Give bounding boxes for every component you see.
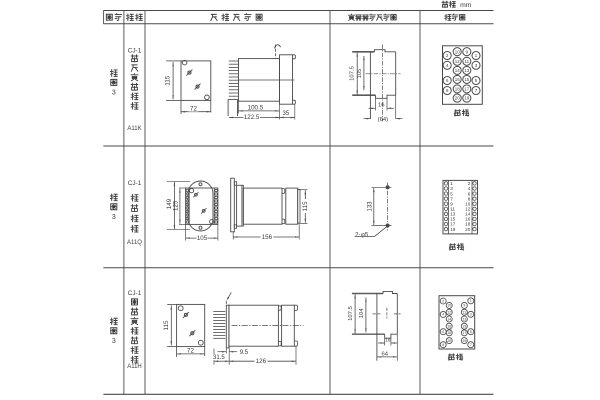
svg-text:CJ-1: CJ-1 [128, 290, 142, 297]
svg-text:4: 4 [442, 313, 444, 317]
svg-text:64: 64 [382, 351, 389, 357]
svg-text:A11H: A11H [127, 364, 142, 370]
svg-text:125: 125 [173, 200, 180, 211]
svg-text:3: 3 [112, 90, 116, 97]
svg-text:(64): (64) [378, 117, 389, 123]
svg-text:): ) [461, 355, 463, 362]
svg-text:16: 16 [385, 338, 391, 344]
svg-text:35: 35 [283, 111, 290, 117]
svg-text:20: 20 [455, 96, 460, 101]
svg-text:12: 12 [455, 59, 460, 64]
svg-text:6: 6 [442, 330, 444, 334]
svg-text:16: 16 [378, 103, 385, 109]
svg-text:14: 14 [447, 317, 451, 321]
svg-text:19: 19 [462, 339, 466, 343]
svg-text:9: 9 [463, 304, 465, 308]
svg-text:126: 126 [256, 358, 267, 365]
svg-text:20: 20 [447, 339, 451, 343]
svg-text:115: 115 [165, 75, 172, 85]
svg-text:15: 15 [462, 325, 466, 329]
svg-text:A11Q: A11Q [127, 240, 142, 246]
svg-text:): ) [462, 244, 464, 251]
svg-text:16: 16 [447, 325, 451, 329]
svg-text:18: 18 [447, 331, 451, 335]
svg-text:104: 104 [359, 308, 365, 319]
svg-text:5: 5 [470, 330, 472, 334]
svg-text:122.5: 122.5 [244, 114, 260, 121]
svg-text:9.5: 9.5 [240, 350, 249, 356]
svg-text:19: 19 [464, 96, 469, 101]
svg-text:107.5: 107.5 [350, 65, 356, 80]
svg-text:3: 3 [470, 313, 472, 317]
svg-text:φ5: φ5 [361, 232, 369, 238]
svg-text:8: 8 [442, 343, 444, 347]
svg-text:31.5: 31.5 [213, 355, 225, 361]
svg-text:3: 3 [112, 338, 116, 345]
svg-text:107.5: 107.5 [348, 305, 354, 320]
svg-text:11: 11 [465, 59, 470, 64]
svg-text:16: 16 [455, 77, 460, 82]
svg-text:105: 105 [197, 235, 208, 242]
svg-text:17: 17 [462, 331, 466, 335]
svg-text:115: 115 [302, 201, 309, 211]
svg-text:2: 2 [442, 299, 444, 303]
svg-text:13: 13 [462, 317, 466, 321]
svg-text:10: 10 [455, 49, 460, 54]
svg-text:): ) [467, 110, 469, 117]
svg-text:CJ-1: CJ-1 [128, 180, 142, 187]
svg-text:72: 72 [190, 105, 197, 112]
svg-text:133: 133 [368, 201, 374, 212]
svg-text:20: 20 [465, 227, 471, 232]
svg-text:115: 115 [163, 320, 170, 330]
svg-text:2-: 2- [355, 232, 360, 238]
svg-text:11: 11 [462, 311, 466, 315]
svg-text:7: 7 [470, 343, 472, 347]
svg-text:18: 18 [455, 87, 460, 92]
svg-text:14: 14 [455, 68, 460, 73]
svg-text:12: 12 [447, 311, 451, 315]
svg-text:13: 13 [464, 68, 469, 73]
svg-text:19: 19 [450, 227, 456, 232]
svg-text:105: 105 [357, 68, 363, 79]
svg-text:CJ-1: CJ-1 [128, 48, 142, 55]
svg-text:A11K: A11K [127, 126, 141, 132]
svg-text:1: 1 [470, 299, 472, 303]
svg-text:：mm: ：mm [453, 2, 471, 9]
svg-text:10: 10 [447, 304, 451, 308]
svg-text:15: 15 [464, 77, 469, 82]
svg-text:3: 3 [112, 214, 116, 221]
svg-text:72: 72 [187, 348, 194, 355]
svg-text:156: 156 [262, 234, 273, 241]
svg-text:17: 17 [464, 87, 469, 92]
svg-text:100.5: 100.5 [248, 104, 264, 111]
